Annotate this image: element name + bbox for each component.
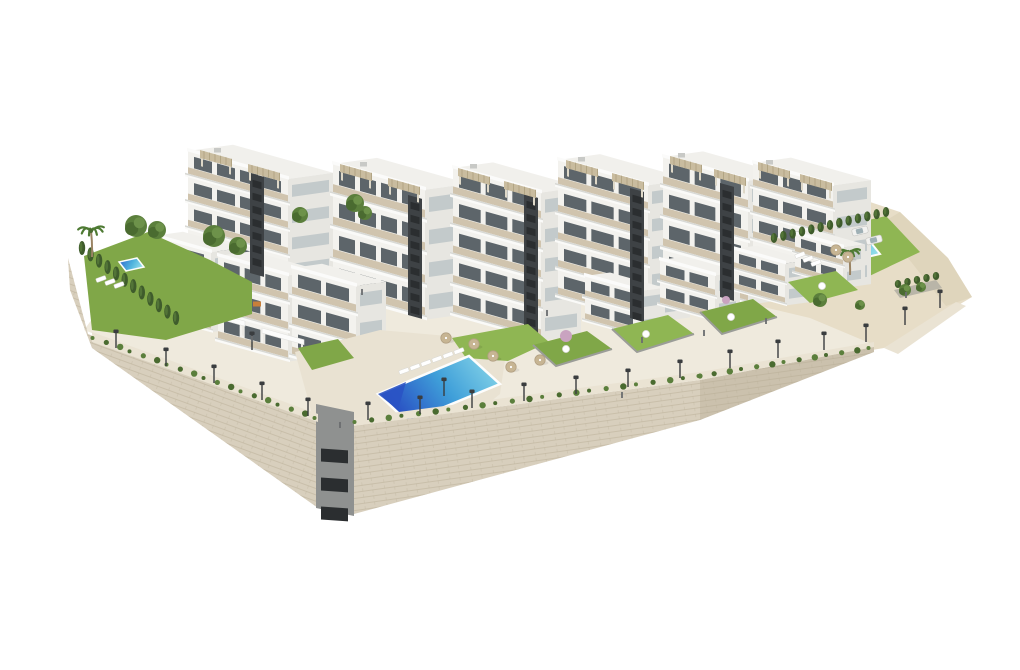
wall-shrub: [754, 364, 759, 369]
cypress-highlight: [88, 248, 91, 258]
cypress-highlight: [174, 312, 177, 322]
tower-window-2: [321, 477, 348, 492]
wall-shrub: [667, 377, 673, 383]
person-head: [621, 392, 623, 394]
roof-unit: [214, 148, 221, 153]
tree-light: [859, 301, 864, 306]
person-head: [251, 336, 253, 338]
lamp-head: [937, 290, 942, 294]
stair-core: [630, 188, 644, 322]
tree-light: [236, 239, 245, 248]
garden-table: [727, 313, 734, 320]
pergola-leg: [567, 168, 569, 177]
lamp-head: [821, 332, 826, 336]
pergola-leg: [263, 333, 265, 344]
cypress-highlight: [837, 218, 840, 225]
parasol-hub: [473, 343, 475, 345]
cypress-highlight: [874, 210, 877, 217]
pergola-leg: [459, 176, 461, 185]
wall-shrub: [128, 349, 132, 353]
wall-shrub: [557, 392, 562, 397]
render-svg: [0, 0, 1020, 670]
lamp-head: [365, 402, 370, 406]
wall-shrub: [228, 384, 234, 390]
wall-shrub: [727, 368, 733, 374]
cypress-highlight: [772, 234, 775, 241]
person: [546, 310, 548, 316]
pergola-leg: [249, 172, 251, 181]
person-head: [361, 289, 363, 291]
wall-shrub: [634, 382, 638, 386]
person: [641, 337, 643, 343]
lamp-head: [417, 396, 422, 400]
palm-crown: [89, 229, 93, 233]
lamp-head: [441, 378, 446, 382]
tree-light: [212, 227, 223, 238]
wall-shrub: [526, 396, 532, 402]
wall-shrub: [604, 386, 609, 391]
person-head: [765, 318, 767, 320]
cypress-highlight: [105, 261, 108, 271]
wall-shrub: [141, 353, 146, 358]
pergola-leg: [277, 180, 279, 189]
cypress-highlight: [97, 255, 100, 265]
tree: [203, 225, 225, 247]
parasol-hub: [445, 337, 447, 339]
pergola-leg: [787, 178, 789, 187]
cypress-highlight: [781, 231, 784, 238]
garden-table: [562, 345, 569, 352]
cypress-highlight: [905, 278, 908, 284]
wall-shrub: [540, 395, 544, 399]
flowering-tree: [722, 296, 730, 304]
person-head: [703, 330, 705, 332]
cypress-highlight: [818, 223, 821, 230]
tree: [899, 284, 911, 296]
flowering-tree: [560, 330, 572, 342]
lamp-head: [775, 340, 780, 344]
stair-core: [720, 183, 734, 301]
tree: [358, 206, 372, 220]
cypress-highlight: [846, 216, 849, 223]
wall-shrub: [867, 346, 871, 350]
wall-shrub: [812, 354, 818, 360]
pergola-leg: [417, 194, 419, 203]
person-body: [361, 291, 363, 295]
tower-window-1: [321, 448, 348, 463]
stair-core: [250, 173, 264, 277]
tree-light: [298, 209, 306, 217]
stair-core: [524, 194, 538, 340]
lamp-head: [163, 348, 168, 352]
tree: [855, 300, 865, 310]
pergola-leg: [613, 181, 615, 190]
tree-light: [904, 285, 910, 291]
wall-shrub: [104, 340, 109, 345]
cypress-highlight: [790, 229, 793, 236]
wall-shrub: [369, 417, 374, 422]
wall-shrub: [681, 376, 685, 380]
cypress-highlight: [800, 227, 803, 234]
tower-window-3: [321, 506, 348, 521]
pergola-leg: [389, 186, 391, 195]
wall-shrub: [276, 403, 280, 407]
wall-shrub: [265, 397, 271, 403]
lamp-head: [902, 307, 907, 311]
roof-unit: [578, 157, 585, 162]
wall-shrub: [154, 357, 160, 363]
pergola-leg: [487, 184, 489, 193]
person-body: [905, 294, 907, 298]
person-head: [546, 310, 548, 312]
pergola-leg: [715, 177, 717, 186]
garden-table: [818, 282, 825, 289]
tree-light: [364, 207, 371, 214]
person: [339, 422, 341, 428]
tree: [916, 282, 926, 292]
person: [765, 318, 767, 324]
cypress-highlight: [139, 287, 142, 297]
pergola-leg: [671, 164, 673, 173]
pergola-leg: [341, 172, 343, 181]
person-body: [765, 320, 767, 324]
wall-shrub: [178, 367, 183, 372]
cypress-highlight: [856, 214, 859, 221]
tree-light: [819, 294, 826, 301]
tree-light: [353, 196, 362, 205]
wall-shrub: [117, 344, 123, 350]
lamp-head: [727, 350, 732, 354]
pergola-leg: [829, 190, 831, 199]
cypress-highlight: [884, 208, 887, 215]
cypress-highlight: [157, 299, 160, 309]
table-top: [642, 330, 649, 337]
tree-light: [155, 223, 164, 232]
lamp-head: [305, 398, 310, 402]
wall-shrub: [191, 370, 197, 376]
wall-shrub: [620, 383, 626, 389]
lamp-head: [677, 360, 682, 364]
cypress-highlight: [114, 268, 117, 278]
wall-shrub: [797, 357, 802, 362]
lamp-head: [249, 332, 254, 336]
wall-shrub: [739, 367, 743, 371]
roof-unit: [766, 160, 773, 165]
person-body: [703, 332, 705, 336]
wall-shrub: [493, 401, 497, 405]
person: [621, 392, 623, 398]
wall-shrub: [839, 350, 844, 355]
tree: [148, 221, 166, 239]
person: [361, 289, 363, 295]
person: [905, 292, 907, 298]
tree-light: [920, 283, 925, 288]
tree: [125, 215, 147, 237]
person-body: [546, 312, 548, 316]
pergola-leg: [505, 189, 507, 198]
palm-trunk: [91, 231, 92, 257]
terrace-table: [253, 302, 261, 307]
lamp-head: [211, 365, 216, 369]
cypress-highlight: [865, 212, 868, 219]
wall-shrub: [289, 407, 294, 412]
lamp-head: [521, 383, 526, 387]
person-body: [251, 338, 253, 342]
cypress-highlight: [934, 272, 937, 278]
person-body: [641, 339, 643, 343]
parasol-hub: [539, 359, 541, 361]
wall-shrub: [386, 415, 392, 421]
table-top: [562, 345, 569, 352]
lamp-head: [469, 390, 474, 394]
wall-shrub: [353, 420, 357, 424]
pergola-leg: [242, 325, 244, 336]
wall-shrub: [202, 376, 206, 380]
cypress-highlight: [896, 280, 899, 286]
wall-shrub: [712, 371, 717, 376]
wall-shrub: [313, 416, 317, 420]
wall-shrub: [215, 380, 220, 385]
wall-shrub: [782, 360, 786, 364]
parasol-hub: [847, 256, 849, 258]
person: [251, 336, 253, 342]
person-body: [621, 394, 623, 398]
pergola-leg: [641, 189, 643, 198]
table-top: [818, 282, 825, 289]
architectural-render-canvas: [0, 0, 1020, 670]
cypress-highlight: [915, 276, 918, 282]
person-head: [339, 422, 341, 424]
tree: [292, 207, 308, 223]
tree-light: [134, 217, 145, 228]
cypress-highlight: [148, 293, 151, 303]
wall-shrub: [446, 407, 450, 411]
pergola-leg: [759, 170, 761, 179]
wall-shrub: [91, 336, 95, 340]
pergola-leg: [369, 180, 371, 189]
wall-shrub: [697, 374, 701, 378]
wall-shrub: [252, 393, 257, 398]
cypress-highlight: [924, 274, 927, 280]
pergola-leg: [229, 166, 231, 175]
roof-unit: [360, 162, 367, 167]
wall-shrub: [479, 402, 485, 408]
lamp-head: [625, 369, 630, 373]
wall-shrub: [432, 408, 438, 414]
person-head: [905, 292, 907, 294]
wall-shrub: [463, 405, 468, 410]
wall-shrub: [824, 353, 828, 357]
table-top: [727, 313, 734, 320]
garden-table: [642, 330, 649, 337]
parasol-hub: [492, 355, 494, 357]
wall-shrub: [510, 398, 515, 403]
person-head: [641, 337, 643, 339]
tree: [229, 237, 247, 255]
cypress-highlight: [809, 225, 812, 232]
pergola-leg: [595, 176, 597, 185]
tree: [813, 293, 827, 307]
person: [703, 330, 705, 336]
lamp-head: [113, 330, 118, 334]
roof-unit: [470, 164, 477, 169]
cypress-highlight: [80, 242, 83, 252]
cypress-highlight: [131, 280, 134, 290]
pergola-leg: [743, 185, 745, 194]
roof-unit: [678, 153, 685, 158]
wall-shrub: [650, 380, 655, 385]
wall-shrub: [399, 414, 403, 418]
cypress-highlight: [828, 221, 831, 228]
lamp-head: [863, 324, 868, 328]
parasol-hub: [510, 366, 512, 368]
cypress-highlight: [165, 306, 168, 316]
wall-shrub: [769, 361, 775, 367]
wall-shrub: [239, 389, 243, 393]
person-body: [339, 424, 341, 428]
lamp-head: [573, 376, 578, 380]
pergola-leg: [201, 158, 203, 167]
stair-core: [408, 195, 422, 319]
wall-shrub: [587, 389, 591, 393]
lamp-head: [259, 382, 264, 386]
pergola-leg: [533, 197, 535, 206]
parasol-hub: [835, 249, 837, 251]
pergola-leg: [801, 182, 803, 191]
wall-shrub: [854, 347, 860, 353]
pergola-leg: [699, 172, 701, 181]
